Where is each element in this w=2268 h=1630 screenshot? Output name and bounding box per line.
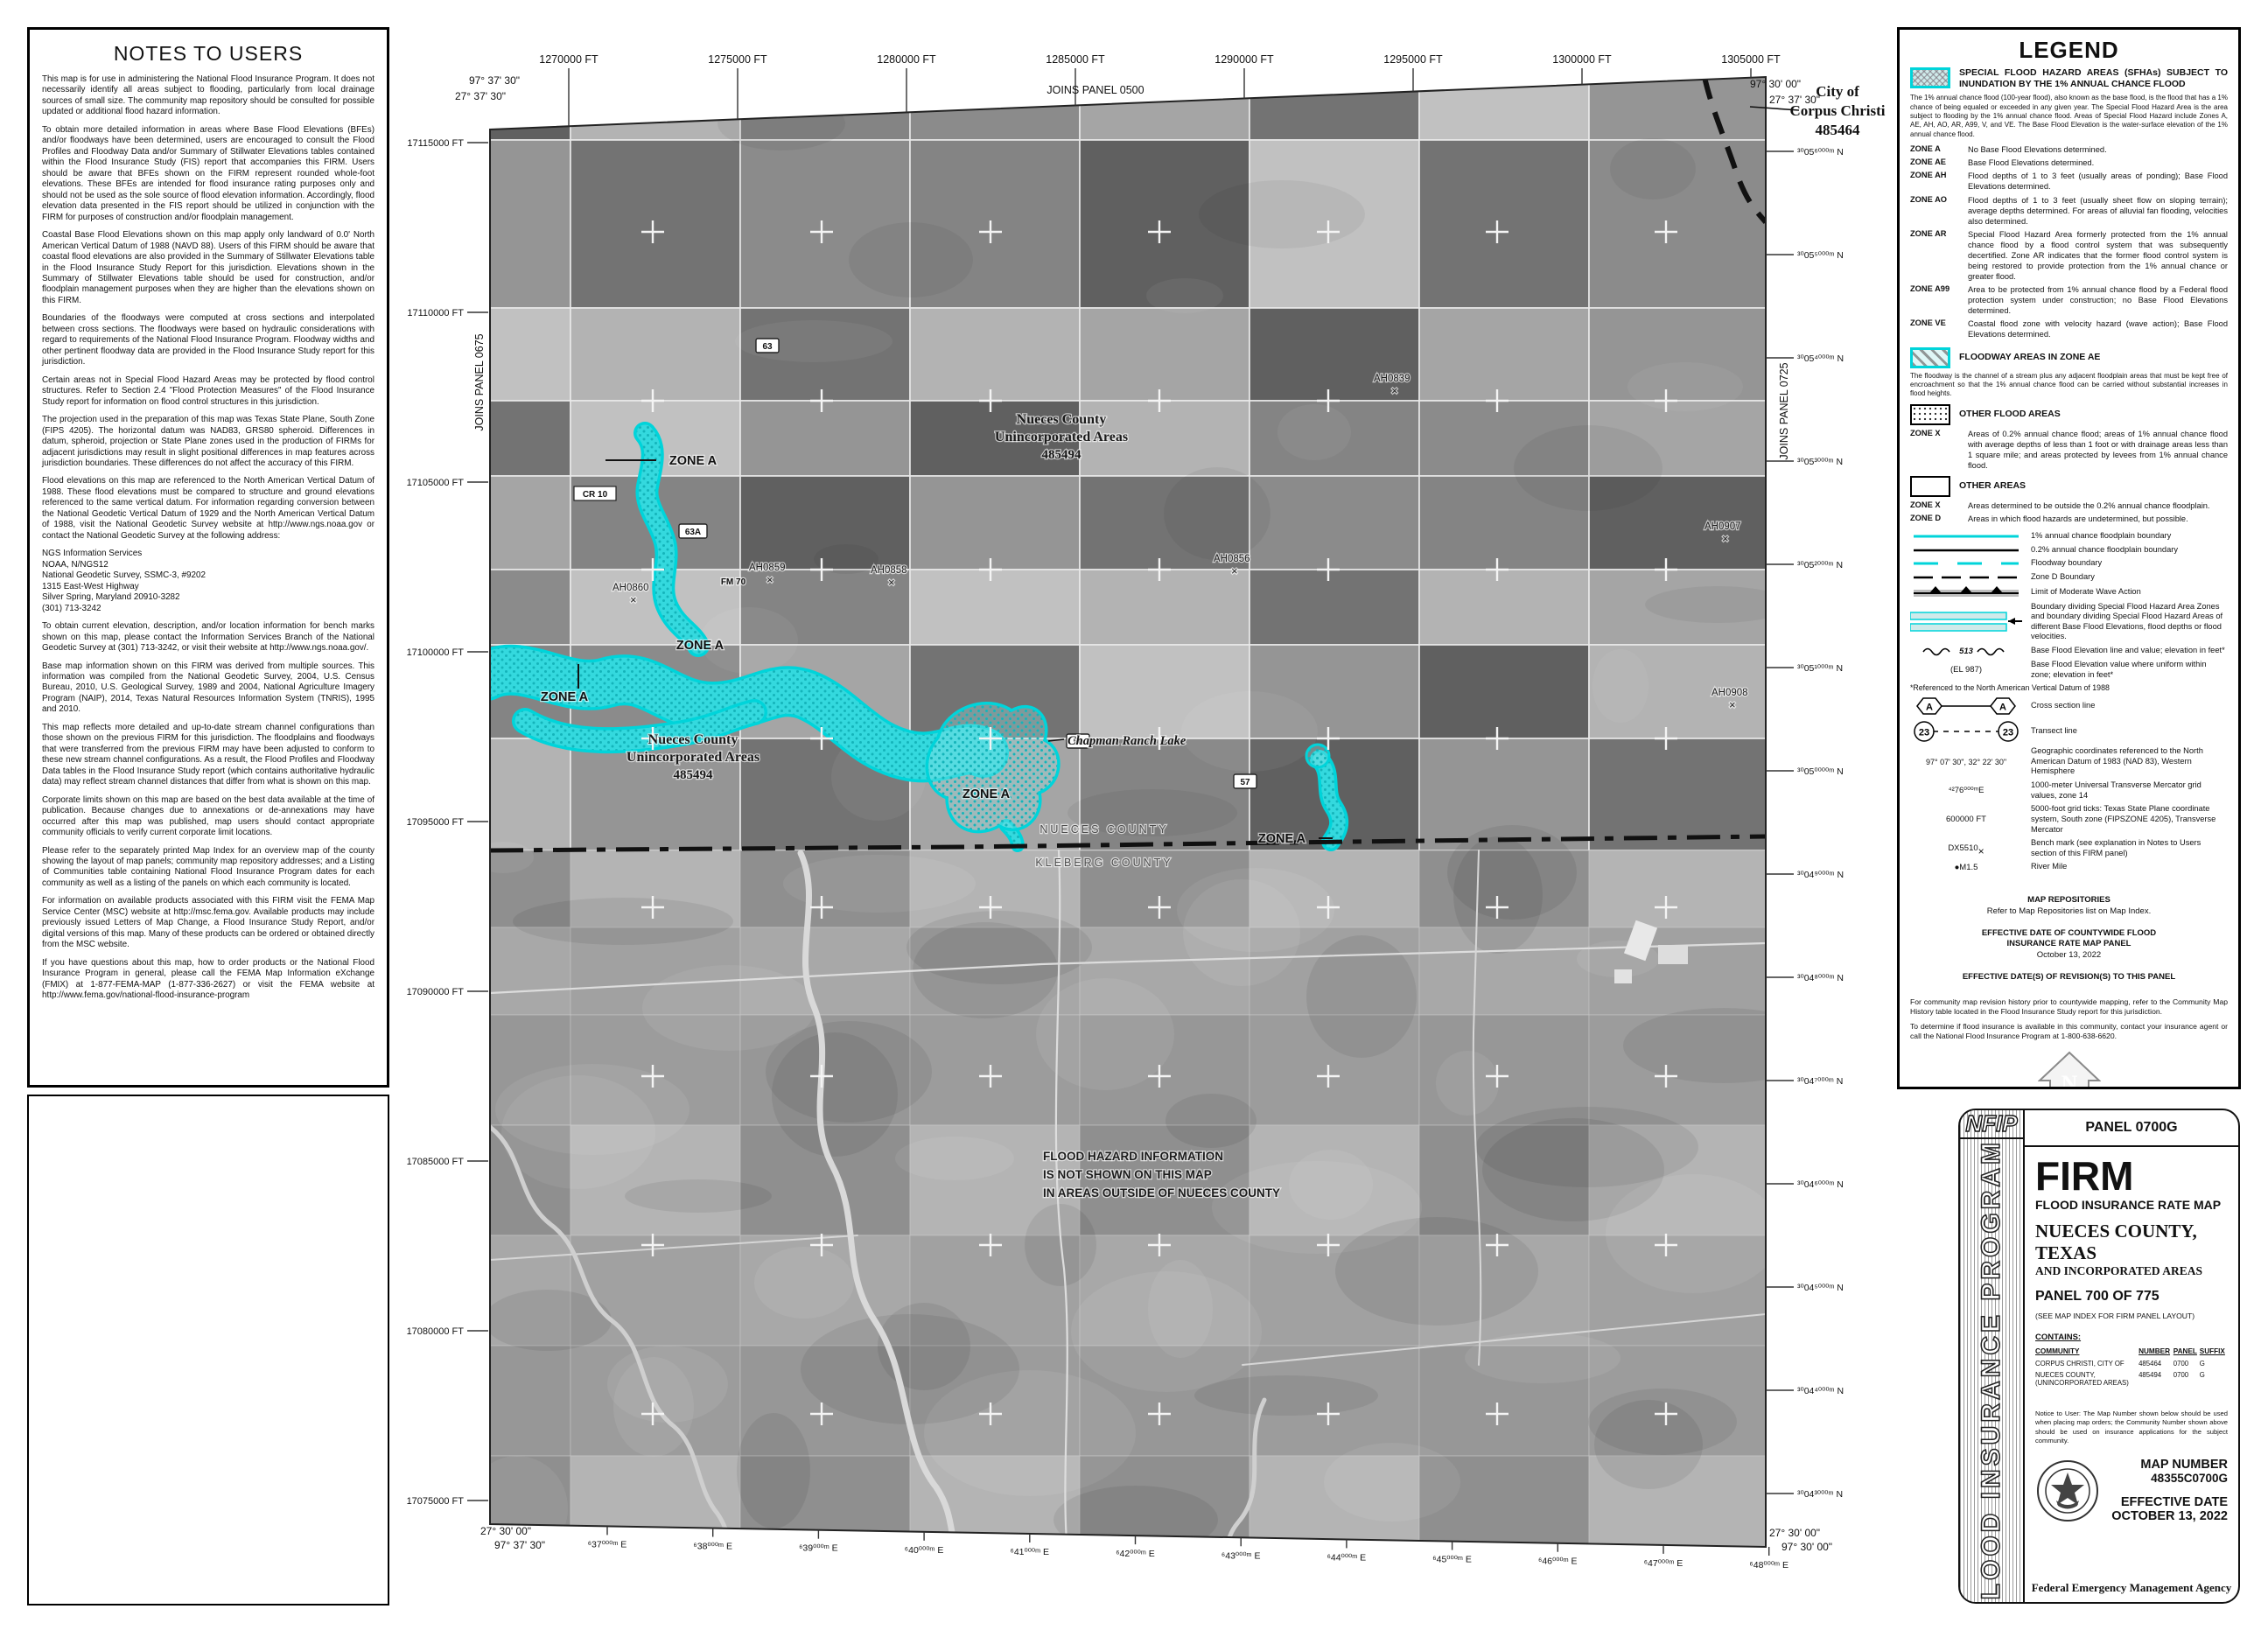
river-mile-sample: ●M1.5 bbox=[1910, 863, 2022, 872]
legend-line-row: 97° 07' 30", 32° 22' 30" Geographic coor… bbox=[1910, 746, 2228, 777]
limwa-line bbox=[1914, 586, 2019, 598]
notes-paragraph: Corporate limits shown on this map are b… bbox=[42, 795, 374, 839]
panel-number-header: PANEL 0700G bbox=[2025, 1110, 2238, 1147]
field-cell bbox=[910, 476, 1080, 570]
corner-coordinate: 97° 37' 30" bbox=[469, 74, 520, 87]
insurance-note: To determine if flood insurance is avail… bbox=[1910, 1022, 2228, 1041]
field-cell bbox=[490, 570, 570, 645]
nfip-logo: NFIP bbox=[1960, 1110, 2023, 1139]
notes-paragraph: Flood elevations on this map are referen… bbox=[42, 476, 374, 542]
road-shield-label: 57 bbox=[1240, 778, 1250, 787]
benchmark-x-icon: × bbox=[1231, 564, 1238, 577]
field-cell bbox=[1419, 308, 1589, 401]
county-name: NUECES COUNTY, bbox=[2035, 1221, 2228, 1242]
incorporated-areas: AND INCORPORATED AREAS bbox=[2035, 1264, 2228, 1278]
zone-item: ZONE DAreas in which flood hazards are u… bbox=[1910, 514, 2228, 524]
bottom-tick-label: ⁶38⁰⁰⁰ᵐ E bbox=[693, 1542, 732, 1552]
notes-paragraph: To obtain more detailed information in a… bbox=[42, 125, 374, 223]
county-area-label: Nueces County bbox=[1017, 412, 1107, 427]
benchmark-x-icon: × bbox=[1729, 698, 1736, 711]
top-tick-label: 1290000 FT bbox=[1214, 53, 1274, 66]
right-tick-label: ³⁰05¹⁰⁰⁰ᵐ N bbox=[1797, 663, 1843, 674]
county-area-label: 485494 bbox=[1042, 448, 1082, 462]
right-tick-label: ³⁰05⁶⁰⁰⁰ᵐ N bbox=[1797, 147, 1844, 157]
sfha-heading: SPECIAL FLOOD HAZARD AREAS (SFHAs) SUBJE… bbox=[1959, 67, 2228, 90]
field-cell bbox=[1249, 70, 1419, 140]
floodway-swatch bbox=[1910, 347, 1950, 368]
right-tick-label: ³⁰04⁷⁰⁰⁰ᵐ N bbox=[1797, 1076, 1843, 1087]
left-tick-label: 17085000 FT bbox=[407, 1157, 465, 1167]
right-tick-label: ³⁰04⁴⁰⁰⁰ᵐ N bbox=[1797, 1386, 1844, 1396]
flood-hazard-note: IS NOT SHOWN ON THIS MAP bbox=[1043, 1168, 1212, 1181]
notes-to-users-panel: NOTES TO USERS This map is for use in ad… bbox=[27, 27, 389, 1088]
flood-hazard-note: FLOOD HAZARD INFORMATION bbox=[1043, 1150, 1223, 1163]
corner-coordinate: 97° 30' 00" bbox=[1781, 1541, 1832, 1553]
benchmark-label: AH0859 bbox=[749, 563, 786, 573]
svg-text:23: 23 bbox=[2003, 728, 2013, 738]
zone-d-boundary-line bbox=[1914, 574, 2019, 581]
flood-hazard-note: IN AREAS OUTSIDE OF NUECES COUNTY bbox=[1043, 1186, 1280, 1200]
zone-x-shaded-swatch bbox=[1910, 404, 1950, 425]
cross-section-symbol: A A bbox=[1914, 696, 2019, 717]
benchmark-x-icon: × bbox=[1722, 532, 1729, 545]
notes-paragraph: Boundaries of the floodways were compute… bbox=[42, 313, 374, 367]
right-tick-label: ³⁰04⁵⁰⁰⁰ᵐ N bbox=[1797, 1283, 1844, 1293]
revisions-heading: EFFECTIVE DATE(S) OF REVISION(S) TO THIS… bbox=[1963, 972, 2175, 982]
legend-line-row: 513 Base Flood Elevation line and value;… bbox=[1910, 646, 2228, 656]
notes-paragraph: Certain areas not in Special Flood Hazar… bbox=[42, 375, 374, 408]
legend-line-row: Zone D Boundary bbox=[1910, 572, 2228, 583]
right-tick-label: ³⁰05²⁰⁰⁰ᵐ N bbox=[1797, 560, 1843, 570]
bottom-tick-label: ⁶44⁰⁰⁰ᵐ E bbox=[1327, 1552, 1367, 1563]
other-areas-swatch bbox=[1910, 476, 1950, 497]
benchmark-sample: DX5510 bbox=[1948, 843, 1977, 853]
field-cell bbox=[910, 70, 1080, 140]
bottom-tick-label: ⁶42⁰⁰⁰ᵐ E bbox=[1116, 1549, 1155, 1559]
city-label: City of bbox=[1816, 83, 1859, 100]
kleberg-county-label: KLEBERG COUNTY bbox=[1035, 857, 1172, 869]
legend-line-row: 1% annual chance floodplain boundary bbox=[1910, 531, 2228, 542]
legend-line-row: Limit of Moderate Wave Action bbox=[1910, 586, 2228, 598]
field-cell bbox=[490, 738, 570, 850]
effective-date-heading1: EFFECTIVE DATE OF COUNTYWIDE FLOOD bbox=[1982, 928, 2156, 938]
county-area-label: Unincorporated Areas bbox=[995, 430, 1128, 444]
bottom-tick-label: ⁶40⁰⁰⁰ᵐ E bbox=[905, 1545, 944, 1556]
notes-paragraph: If you have questions about this map, ho… bbox=[42, 958, 374, 1002]
dhs-seal-icon bbox=[2035, 1459, 2100, 1523]
zone-item: ZONE VECoastal flood zone with velocity … bbox=[1910, 318, 2228, 339]
zone-item: ZONE ANo Base Flood Elevations determine… bbox=[1910, 144, 2228, 155]
left-tick-label: 17115000 FT bbox=[407, 138, 464, 149]
left-tick-label: 17105000 FT bbox=[407, 478, 465, 488]
bottom-tick-label: ⁶48⁰⁰⁰ᵐ E bbox=[1749, 1560, 1788, 1571]
effective-date: OCTOBER 13, 2022 bbox=[2105, 1509, 2228, 1523]
notes-paragraph: To obtain current elevation, description… bbox=[42, 621, 374, 654]
zone-item: ZONE A99Area to be protected from 1% ann… bbox=[1910, 284, 2228, 316]
floodway-desc: The floodway is the channel of a stream … bbox=[1910, 372, 2228, 399]
top-tick-label: 1285000 FT bbox=[1046, 53, 1105, 66]
benchmark-label: AH0839 bbox=[1374, 374, 1410, 384]
bottom-tick-label: ⁶37⁰⁰⁰ᵐ E bbox=[588, 1539, 627, 1550]
point2-boundary-line bbox=[1914, 547, 2019, 554]
firm-map: 1270000 FT1275000 FT1280000 FT1285000 FT… bbox=[376, 27, 1897, 1606]
left-tick-label: 17090000 FT bbox=[407, 987, 465, 997]
corner-coordinate: 27° 37' 30" bbox=[455, 90, 506, 102]
corner-coordinate: 97° 30' 00" bbox=[1750, 78, 1801, 90]
effective-date-heading2: INSURANCE RATE MAP PANEL bbox=[2007, 939, 2131, 948]
field-cell bbox=[570, 140, 740, 308]
countywide-effective-date: October 13, 2022 bbox=[2037, 950, 2101, 960]
field-cell bbox=[1080, 570, 1249, 645]
legend-line-row: DX5510× Bench mark (see explanation in N… bbox=[1910, 838, 2228, 858]
notes-paragraph: Coastal Base Flood Elevations shown on t… bbox=[42, 230, 374, 306]
map-repositories-text: Refer to Map Repositories list on Map In… bbox=[1987, 906, 2151, 916]
svg-text:A: A bbox=[1999, 703, 2006, 713]
floodplain-boundary-line bbox=[1914, 533, 2019, 540]
state-name: TEXAS bbox=[2035, 1242, 2228, 1264]
firm-subtitle: FLOOD INSURANCE RATE MAP bbox=[2035, 1198, 2228, 1212]
field-cell bbox=[1249, 476, 1419, 570]
aerial-photo bbox=[466, 70, 1824, 1561]
field-cell bbox=[910, 570, 1080, 645]
field-cell bbox=[1419, 645, 1589, 738]
zone-item: ZONE XAreas of 0.2% annual chance flood;… bbox=[1910, 429, 2228, 471]
bottom-tick-label: ⁶45⁰⁰⁰ᵐ E bbox=[1432, 1555, 1472, 1565]
bottom-tick-label: ⁶47⁰⁰⁰ᵐ E bbox=[1644, 1558, 1683, 1569]
top-tick-label: 1305000 FT bbox=[1721, 53, 1781, 66]
field-cell bbox=[570, 70, 740, 140]
corner-coordinate: 97° 37' 30" bbox=[494, 1539, 545, 1551]
field-cell bbox=[910, 308, 1080, 401]
left-tick-label: 17095000 FT bbox=[407, 817, 465, 828]
left-tick-label: 17075000 FT bbox=[407, 1496, 465, 1507]
bfe-footnote: *Referenced to the North American Vertic… bbox=[1910, 683, 2228, 692]
corner-coordinate: 27° 30' 00" bbox=[1769, 1527, 1820, 1539]
zone-a-label: ZONE A bbox=[541, 690, 589, 704]
map-repositories-title: MAP REPOSITORIES bbox=[2027, 895, 2110, 905]
firm-title-block: NFIP NATIONAL FLOOD INSURANCE PROGRAM PA… bbox=[1958, 1109, 2240, 1604]
map-number: 48355C0700G bbox=[2105, 1472, 2228, 1485]
road-label: CR 10 bbox=[583, 490, 608, 500]
benchmark-label: AH0856 bbox=[1214, 554, 1250, 564]
joins-panel-right-label: JOINS PANEL 0725 bbox=[1778, 362, 1790, 459]
zone-item: ZONE AOFlood depths of 1 to 3 feet (usua… bbox=[1910, 195, 2228, 227]
field-cell bbox=[490, 308, 570, 401]
right-tick-label: ³⁰05⁵⁰⁰⁰ᵐ N bbox=[1797, 250, 1844, 261]
road-shield-label: 63A bbox=[685, 528, 701, 537]
notes-paragraph: Please refer to the separately printed M… bbox=[42, 846, 374, 890]
benchmark-x-icon: × bbox=[1978, 845, 1984, 857]
top-tick-label: 1300000 FT bbox=[1552, 53, 1612, 66]
legend-line-row: Boundary dividing Special Flood Hazard A… bbox=[1910, 602, 2228, 642]
field-cell bbox=[490, 140, 570, 308]
field-cell bbox=[1080, 308, 1249, 401]
right-tick-label: ³⁰05⁴⁰⁰⁰ᵐ N bbox=[1797, 353, 1844, 364]
history-note: For community map revision history prior… bbox=[1910, 997, 2228, 1017]
right-tick-label: ³⁰04³⁰⁰⁰ᵐ N bbox=[1797, 1489, 1843, 1500]
zone-item: ZONE ARSpecial Flood Hazard Area formerl… bbox=[1910, 229, 2228, 282]
benchmark-x-icon: × bbox=[1391, 384, 1398, 397]
bottom-tick-label: ⁶41⁰⁰⁰ᵐ E bbox=[1011, 1547, 1050, 1557]
left-tick-label: 17080000 FT bbox=[407, 1326, 465, 1337]
legend-line-row: ●M1.5 River Mile bbox=[1910, 862, 2228, 872]
map-number-label: MAP NUMBER bbox=[2105, 1458, 2228, 1472]
right-tick-label: ³⁰05⁰⁰⁰⁰ᵐ N bbox=[1797, 766, 1844, 777]
firm-title: FIRM bbox=[2035, 1156, 2228, 1196]
field-cell bbox=[490, 476, 570, 570]
see-map-index: (SEE MAP INDEX FOR FIRM PANEL LAYOUT) bbox=[2035, 1312, 2228, 1320]
sfha-divide-symbol bbox=[1910, 612, 2022, 633]
legend-line-row: 0.2% annual chance floodplain boundary bbox=[1910, 545, 2228, 556]
county-area-label: 485494 bbox=[674, 768, 714, 782]
notes-paragraph: The projection used in the preparation o… bbox=[42, 415, 374, 469]
geo-coord-sample: 97° 07' 30", 32° 22' 30" bbox=[1910, 758, 2022, 766]
agency-name: Federal Emergency Management Agency bbox=[2025, 1581, 2238, 1595]
right-tick-label: ³⁰05³⁰⁰⁰ᵐ N bbox=[1797, 457, 1843, 467]
svg-text:A: A bbox=[1926, 703, 1933, 713]
svg-text:N: N bbox=[2061, 1071, 2077, 1089]
field-cell bbox=[1589, 738, 1766, 850]
zone-a-label: ZONE A bbox=[962, 787, 1011, 801]
table-row: CORPUS CHRISTI, CITY OF 485464 0700 G bbox=[2035, 1358, 2228, 1369]
legend-title: LEGEND bbox=[1910, 37, 2228, 64]
bfe-wave-right bbox=[1977, 646, 2010, 656]
notes-title: NOTES TO USERS bbox=[42, 42, 374, 66]
stateplane-grid-sample: 600000 FT bbox=[1910, 815, 2022, 824]
county-area-label: Nueces County bbox=[648, 732, 738, 747]
bfe-wave-left bbox=[1922, 646, 1956, 656]
left-tick-label: 17110000 FT bbox=[407, 308, 464, 318]
legend-panel: LEGEND SPECIAL FLOOD HAZARD AREAS (SFHAs… bbox=[1897, 27, 2241, 1089]
corner-coordinate: 27° 30' 00" bbox=[480, 1525, 531, 1537]
bottom-tick-label: ⁶39⁰⁰⁰ᵐ E bbox=[799, 1543, 838, 1554]
notice-to-user: Notice to User: The Map Number shown bel… bbox=[2035, 1410, 2228, 1445]
top-tick-label: 1280000 FT bbox=[877, 53, 936, 66]
field-cell bbox=[1419, 140, 1589, 308]
transect-symbol: 23 23 bbox=[1914, 720, 2019, 743]
communities-table: COMMUNITY NUMBER PANEL SUFFIX CORPUS CHR… bbox=[2035, 1347, 2228, 1389]
legend-line-row: ⁴²76⁰⁰⁰ᵐE 1000-meter Universal Transvers… bbox=[1910, 780, 2228, 801]
field-cell bbox=[1249, 570, 1419, 645]
benchmark-x-icon: × bbox=[630, 593, 637, 606]
zone-item: ZONE AHFlood depths of 1 to 3 feet (usua… bbox=[1910, 171, 2228, 192]
panel-of: PANEL 700 OF 775 bbox=[2035, 1289, 2228, 1305]
city-label: Corpus Christi bbox=[1789, 102, 1885, 119]
table-row: NUECES COUNTY, (UNINCORPORATED AREAS) 48… bbox=[2035, 1369, 2228, 1389]
legend-line-row: 600000 FT 5000-foot grid ticks: Texas St… bbox=[1910, 804, 2228, 835]
top-tick-label: 1270000 FT bbox=[539, 53, 598, 66]
zone-item: ZONE XAreas determined to be outside the… bbox=[1910, 500, 2228, 511]
zone-a-label: ZONE A bbox=[1258, 832, 1306, 846]
other-areas-heading: OTHER AREAS bbox=[1959, 480, 2026, 492]
notes-paragraph: This map is for use in administering the… bbox=[42, 74, 374, 118]
benchmark-x-icon: × bbox=[766, 573, 773, 586]
field-cell bbox=[490, 401, 570, 476]
empty-panel bbox=[27, 1095, 389, 1606]
bottom-tick-label: ⁶43⁰⁰⁰ᵐ E bbox=[1221, 1550, 1261, 1561]
benchmark-label: AH0858 bbox=[871, 565, 907, 576]
joins-panel-top-label: JOINS PANEL 0500 bbox=[1046, 84, 1144, 96]
left-tick-label: 17100000 FT bbox=[407, 647, 465, 658]
sfha-intro: The 1% annual chance flood (100-year flo… bbox=[1910, 94, 2228, 139]
bottom-tick-label: ⁶46⁰⁰⁰ᵐ E bbox=[1538, 1557, 1578, 1567]
right-tick-label: ³⁰04⁶⁰⁰⁰ᵐ N bbox=[1797, 1179, 1844, 1190]
joins-panel-left-label: JOINS PANEL 0675 bbox=[473, 333, 486, 430]
north-arrow-icon: N bbox=[2038, 1051, 2101, 1089]
notes-paragraph: Base map information shown on this FIRM … bbox=[42, 661, 374, 716]
field-cell bbox=[1419, 70, 1589, 140]
top-tick-label: 1295000 FT bbox=[1383, 53, 1443, 66]
benchmark-x-icon: × bbox=[888, 576, 895, 589]
notes-paragraph: This map reflects more detailed and up-t… bbox=[42, 723, 374, 788]
zone-a-label: ZONE A bbox=[669, 454, 717, 468]
ngs-address: NGS Information Services NOAA, N/NGS12 N… bbox=[42, 549, 374, 614]
zone-item: ZONE AEBase Flood Elevations determined. bbox=[1910, 157, 2228, 168]
el-value: (EL 987) bbox=[1910, 665, 2022, 675]
road-shield-label: 63 bbox=[762, 342, 773, 352]
field-cell bbox=[570, 308, 740, 401]
contains-label: CONTAINS: bbox=[2035, 1333, 2228, 1342]
benchmark-label: AH0907 bbox=[1704, 521, 1741, 532]
svg-text:23: 23 bbox=[1919, 728, 1929, 738]
legend-line-row: Floodway boundary bbox=[1910, 558, 2228, 569]
legend-line-row: A A Cross section line bbox=[1910, 696, 2228, 717]
nfip-banner: NFIP NATIONAL FLOOD INSURANCE PROGRAM bbox=[1960, 1110, 2025, 1602]
benchmark-label: AH0908 bbox=[1711, 688, 1748, 698]
lake-label: Chapman Ranch Lake bbox=[1067, 734, 1186, 748]
utm-grid-sample: ⁴²76⁰⁰⁰ᵐE bbox=[1910, 786, 2022, 795]
field-cell bbox=[1419, 570, 1589, 645]
city-label: 485464 bbox=[1816, 122, 1861, 138]
map-area: 1270000 FT1275000 FT1280000 FT1285000 FT… bbox=[376, 27, 1897, 1606]
right-tick-label: ³⁰04⁸⁰⁰⁰ᵐ N bbox=[1797, 973, 1844, 983]
notes-paragraph: For information on available products as… bbox=[42, 896, 374, 950]
nfip-banner-text: NATIONAL FLOOD INSURANCE PROGRAM bbox=[1960, 1139, 2023, 1604]
sfha-swatch bbox=[1910, 67, 1950, 88]
other-flood-areas-heading: OTHER FLOOD AREAS bbox=[1959, 409, 2061, 420]
zone-a-label: ZONE A bbox=[676, 639, 724, 653]
county-area-label: Unincorporated Areas bbox=[626, 750, 759, 765]
road-label: FM 70 bbox=[721, 577, 746, 587]
right-tick-label: ³⁰04⁹⁰⁰⁰ᵐ N bbox=[1797, 870, 1844, 880]
benchmark-label: AH0860 bbox=[612, 583, 649, 593]
top-tick-label: 1275000 FT bbox=[708, 53, 767, 66]
field-cell bbox=[740, 401, 910, 476]
bfe-value: 513 bbox=[1959, 647, 1973, 656]
floodway-boundary-line bbox=[1914, 560, 2019, 567]
effective-date-label: EFFECTIVE DATE bbox=[2105, 1495, 2228, 1509]
floodway-heading: FLOODWAY AREAS IN ZONE AE bbox=[1959, 352, 2100, 363]
legend-line-row: (EL 987) Base Flood Elevation value wher… bbox=[1910, 660, 2228, 680]
legend-line-row: 23 23 Transect line bbox=[1910, 720, 2228, 743]
nueces-county-label: NUECES COUNTY bbox=[1039, 823, 1168, 836]
